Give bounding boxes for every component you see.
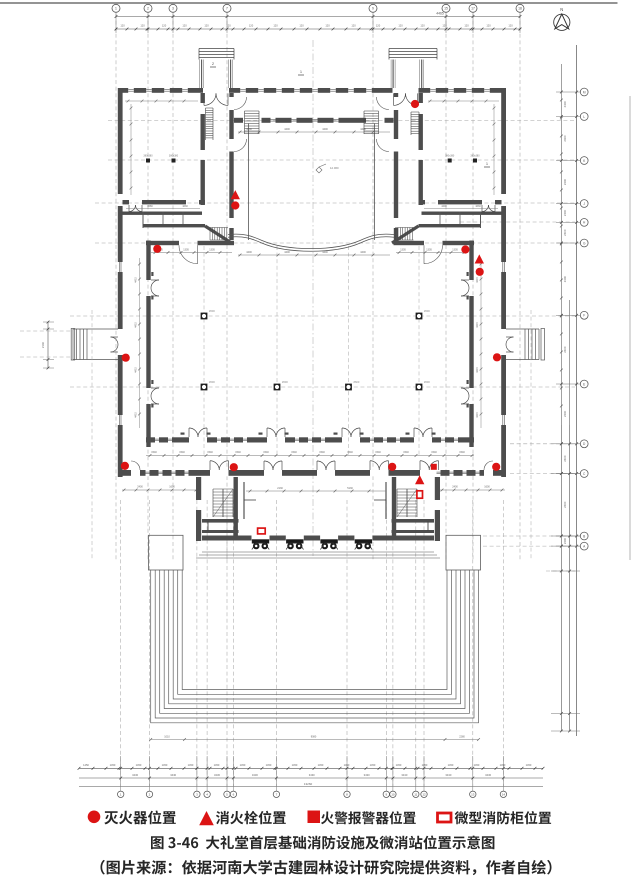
svg-text:4415: 4415 — [134, 367, 138, 373]
svg-text:1450: 1450 — [448, 763, 454, 767]
svg-text:1450: 1450 — [110, 763, 116, 767]
svg-text:2400: 2400 — [137, 486, 143, 489]
svg-text:12: 12 — [422, 793, 426, 797]
svg-text:2280: 2280 — [459, 736, 465, 739]
svg-text:1540: 1540 — [375, 451, 381, 454]
svg-text:120: 120 — [140, 24, 145, 28]
svg-text:1540: 1540 — [291, 451, 297, 454]
svg-text:#600: #600 — [424, 380, 430, 384]
svg-text:1: 1 — [115, 7, 117, 11]
svg-text:1450: 1450 — [526, 763, 532, 767]
svg-text:120: 120 — [325, 24, 330, 28]
svg-text:4415: 4415 — [475, 322, 479, 328]
svg-text:1600: 1600 — [484, 486, 490, 489]
svg-text:4400: 4400 — [246, 251, 252, 254]
svg-text:1450: 1450 — [422, 763, 428, 767]
svg-text:#600: #600 — [282, 380, 288, 384]
svg-text:3: 3 — [172, 7, 174, 11]
svg-text:120: 120 — [464, 24, 469, 28]
svg-text:1450: 1450 — [266, 763, 272, 767]
svg-text:1450: 1450 — [500, 763, 506, 767]
svg-text:1450: 1450 — [474, 763, 480, 767]
svg-text:1540: 1540 — [403, 451, 409, 454]
svg-text:2400: 2400 — [563, 538, 567, 545]
svg-text:1305: 1305 — [452, 249, 458, 252]
svg-text:1305: 1305 — [183, 249, 189, 252]
svg-text:120: 120 — [398, 24, 403, 28]
svg-text:10: 10 — [391, 793, 395, 797]
svg-text:N: N — [560, 7, 563, 12]
svg-text:L: L — [583, 115, 585, 119]
svg-text:3430: 3430 — [401, 773, 407, 777]
svg-text:13260: 13260 — [304, 782, 313, 786]
svg-text:120: 120 — [486, 24, 491, 28]
svg-text:1450: 1450 — [344, 763, 350, 767]
svg-text:#600: #600 — [424, 309, 430, 313]
svg-text:120: 120 — [508, 24, 513, 28]
svg-text:4465: 4465 — [436, 12, 444, 16]
svg-text:2: 2 — [212, 62, 214, 66]
svg-text:1540: 1540 — [431, 451, 437, 454]
svg-text:1540: 1540 — [235, 451, 241, 454]
svg-text:4415: 4415 — [134, 277, 138, 283]
svg-text:4400: 4400 — [284, 128, 290, 131]
svg-text:3430: 3430 — [170, 773, 176, 777]
svg-text:M: M — [583, 90, 586, 94]
svg-text:12.060: 12.060 — [330, 166, 339, 170]
svg-text:18: 18 — [518, 7, 522, 11]
svg-text:2400: 2400 — [563, 455, 567, 462]
svg-text:3430: 3430 — [445, 773, 451, 777]
svg-text:14: 14 — [502, 793, 506, 797]
svg-text:4415: 4415 — [475, 367, 479, 373]
svg-text:2400: 2400 — [563, 101, 567, 108]
svg-text:#600: #600 — [209, 309, 215, 313]
svg-text:1305: 1305 — [426, 249, 432, 252]
svg-text:3430: 3430 — [214, 773, 220, 777]
svg-text:1: 1 — [486, 162, 488, 166]
svg-text:9: 9 — [372, 7, 374, 11]
svg-text:1450: 1450 — [188, 763, 194, 767]
svg-text:2400: 2400 — [452, 486, 458, 489]
svg-text:1600: 1600 — [169, 486, 175, 489]
svg-text:1305: 1305 — [400, 249, 406, 252]
svg-text:380x380: 380x380 — [143, 155, 153, 158]
svg-text:4400: 4400 — [360, 251, 366, 254]
svg-text:2400: 2400 — [563, 410, 567, 417]
svg-text:1450: 1450 — [292, 763, 298, 767]
svg-text:120: 120 — [376, 24, 381, 28]
svg-text:1540: 1540 — [207, 451, 213, 454]
svg-text:3430: 3430 — [252, 773, 258, 777]
svg-text:#600: #600 — [354, 380, 360, 384]
svg-text:120: 120 — [299, 24, 304, 28]
svg-text:1540: 1540 — [179, 451, 185, 454]
svg-text:4415: 4415 — [475, 277, 479, 283]
svg-text:7: 7 — [226, 7, 228, 11]
svg-text:F: F — [583, 314, 585, 318]
svg-text:2400: 2400 — [563, 501, 567, 508]
svg-text:380x380: 380x380 — [470, 155, 480, 158]
svg-text:120: 120 — [351, 24, 356, 28]
svg-text:E: E — [583, 382, 585, 386]
svg-text:2130: 2130 — [277, 487, 283, 490]
svg-text:B: B — [583, 534, 585, 538]
svg-text:2400: 2400 — [563, 229, 567, 236]
svg-text:11: 11 — [414, 793, 417, 797]
svg-text:380x380: 380x380 — [169, 155, 179, 158]
svg-text:1: 1 — [300, 70, 302, 74]
svg-text:17: 17 — [471, 7, 475, 11]
svg-text:120: 120 — [182, 24, 187, 28]
svg-text:13: 13 — [471, 793, 475, 797]
svg-text:1450: 1450 — [83, 763, 89, 767]
svg-text:#600: #600 — [209, 380, 215, 384]
svg-text:120: 120 — [273, 24, 278, 28]
svg-text:4415: 4415 — [134, 412, 138, 418]
svg-text:1450: 1450 — [396, 763, 402, 767]
svg-text:120: 120 — [249, 24, 254, 28]
svg-text:1450: 1450 — [136, 763, 142, 767]
svg-text:4415: 4415 — [475, 412, 479, 418]
svg-text:4400: 4400 — [284, 251, 290, 254]
svg-text:1630: 1630 — [182, 205, 188, 208]
svg-text:4400: 4400 — [322, 251, 328, 254]
svg-text:3430: 3430 — [132, 773, 138, 777]
svg-text:2: 2 — [147, 7, 149, 11]
svg-text:1540: 1540 — [347, 451, 353, 454]
svg-text:120: 120 — [226, 24, 231, 28]
svg-text:1450: 1450 — [240, 763, 246, 767]
svg-text:2400: 2400 — [563, 135, 567, 142]
svg-text:2400: 2400 — [563, 276, 567, 283]
svg-text:1010: 1010 — [164, 736, 170, 739]
svg-text:120: 120 — [204, 24, 209, 28]
svg-text:2400: 2400 — [563, 346, 567, 353]
svg-text:15: 15 — [444, 7, 448, 11]
svg-text:8680: 8680 — [147, 205, 153, 208]
svg-text:380x380: 380x380 — [445, 155, 455, 158]
svg-text:2400: 2400 — [563, 209, 567, 216]
svg-text:3430: 3430 — [485, 773, 491, 777]
svg-text:1540: 1540 — [151, 451, 157, 454]
svg-text:1450: 1450 — [162, 763, 168, 767]
svg-text:120: 120 — [420, 24, 425, 28]
svg-text:1450: 1450 — [318, 763, 324, 767]
svg-text:1540: 1540 — [459, 451, 465, 454]
svg-text:2400: 2400 — [563, 178, 567, 185]
svg-text:1450: 1450 — [370, 763, 376, 767]
svg-text:4400: 4400 — [322, 128, 328, 131]
svg-text:3430: 3430 — [309, 773, 315, 777]
svg-text:120: 120 — [442, 24, 447, 28]
svg-text:1630: 1630 — [475, 205, 481, 208]
svg-text:1450: 1450 — [214, 763, 220, 767]
svg-text:9080: 9080 — [311, 736, 317, 739]
svg-text:5130: 5130 — [347, 487, 353, 490]
svg-text:1305: 1305 — [209, 249, 215, 252]
svg-text:3430: 3430 — [364, 773, 370, 777]
svg-text:4415: 4415 — [134, 322, 138, 328]
svg-text:4400: 4400 — [441, 205, 447, 208]
svg-text:2160: 2160 — [41, 341, 45, 348]
svg-text:120: 120 — [120, 24, 125, 28]
svg-text:120: 120 — [162, 24, 167, 28]
svg-text:1540: 1540 — [263, 451, 269, 454]
svg-text:1540: 1540 — [319, 451, 325, 454]
